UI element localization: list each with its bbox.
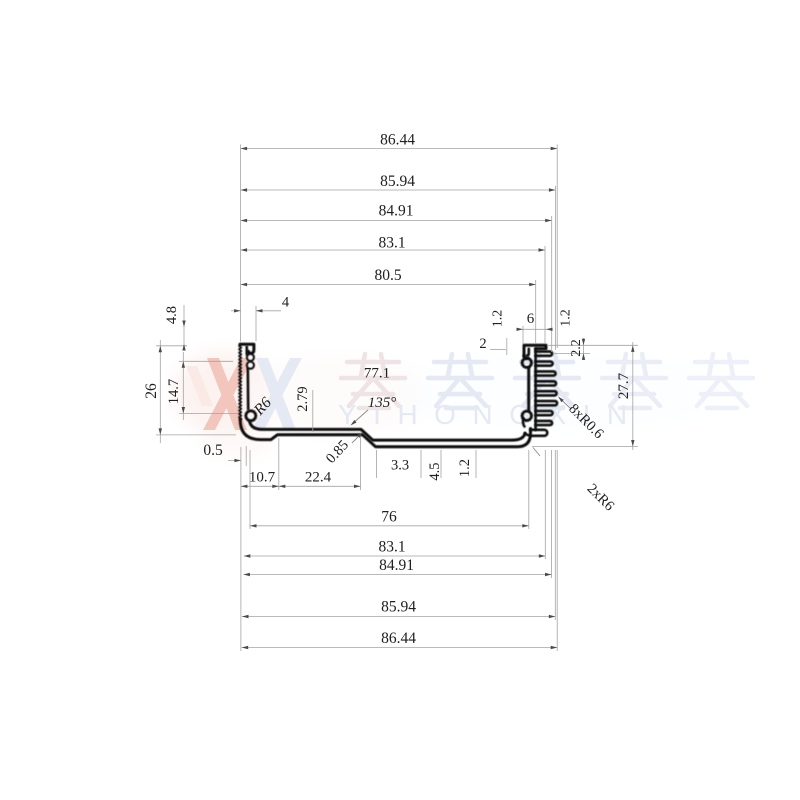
svg-text:27.7: 27.7 [616,372,632,399]
svg-text:83.1: 83.1 [378,235,405,252]
svg-text:0.5: 0.5 [203,442,223,459]
svg-text:6: 6 [527,311,535,327]
svg-text:80.5: 80.5 [374,267,401,284]
svg-text:10.7: 10.7 [249,469,276,485]
svg-text:14.7: 14.7 [166,379,182,404]
svg-text:4.5: 4.5 [427,462,443,480]
svg-text:1.2: 1.2 [491,310,506,328]
svg-text:3.3: 3.3 [391,457,409,473]
svg-text:4: 4 [282,294,290,310]
svg-text:2: 2 [479,336,486,352]
svg-text:22.4: 22.4 [305,469,332,485]
svg-text:1.2: 1.2 [457,459,473,477]
svg-text:1.2: 1.2 [559,309,574,327]
svg-text:76: 76 [381,509,397,526]
svg-text:2.2: 2.2 [569,339,584,357]
svg-text:86.44: 86.44 [380,132,415,149]
svg-text:2.79: 2.79 [295,386,311,411]
svg-text:135°: 135° [368,395,397,411]
svg-text:83.1: 83.1 [378,539,405,556]
svg-text:85.94: 85.94 [380,173,415,190]
svg-text:84.91: 84.91 [379,557,414,574]
svg-text:86.44: 86.44 [381,630,416,647]
svg-text:4.8: 4.8 [164,306,180,324]
svg-text:85.94: 85.94 [381,599,416,616]
svg-text:26: 26 [143,383,160,399]
svg-text:84.91: 84.91 [379,203,414,220]
svg-text:77.1: 77.1 [364,365,390,381]
